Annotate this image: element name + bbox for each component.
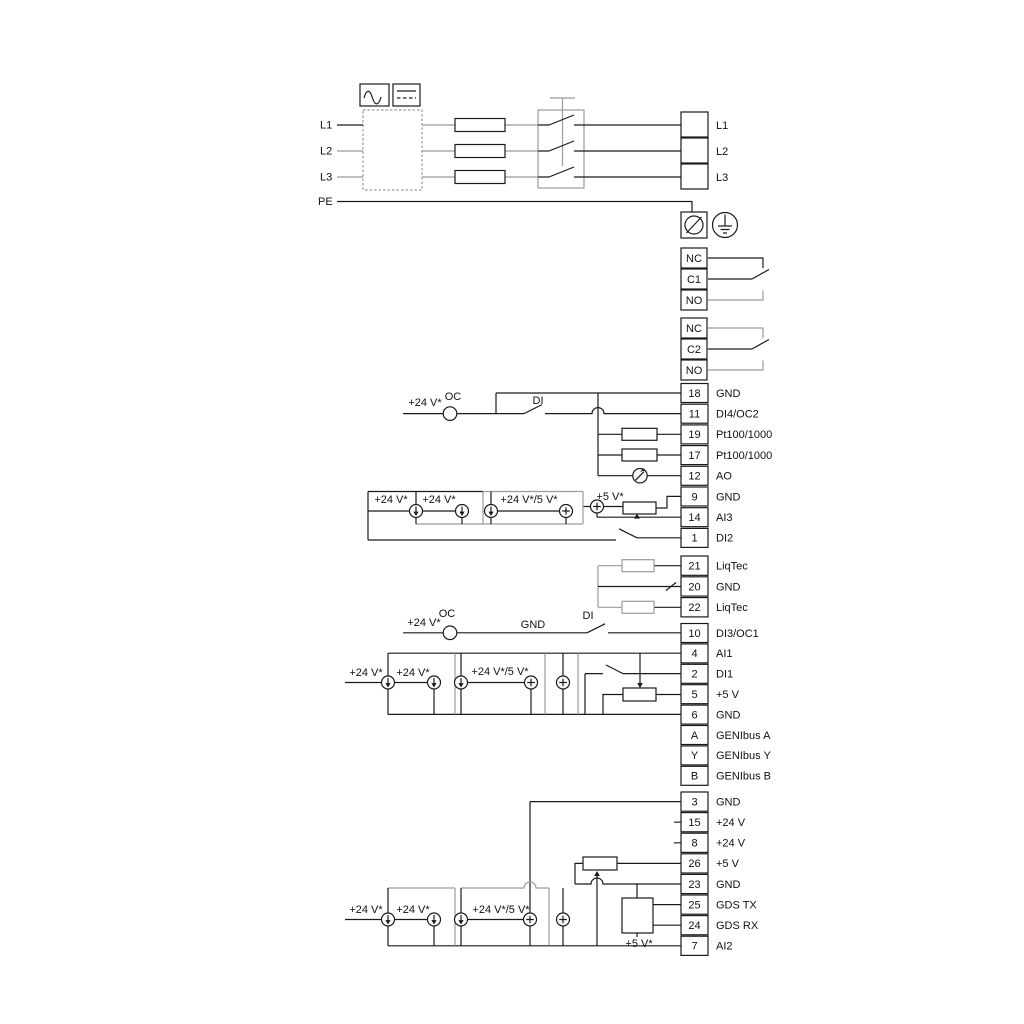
wire-23-gnd (575, 878, 681, 884)
terminal-label: +5 V (716, 689, 740, 701)
terminal-label: GENIbus Y (716, 750, 771, 762)
terminal-label: DI3/OC1 (716, 628, 759, 640)
fuse-l2 (455, 145, 505, 158)
io-mid-block: 10DI3/OC14AI12DI15+5 V6GNDAGENIbus AYGEN… (681, 624, 771, 786)
terminal-number: 6 (691, 709, 697, 721)
wire-9-gnd (656, 496, 681, 508)
relay2-contact (708, 328, 769, 370)
label-24v: +24 V* (349, 904, 383, 916)
terminal-label: Pt100/1000 (716, 429, 772, 441)
terminal-label: GND (716, 879, 741, 891)
terminal-number: 12 (688, 471, 700, 483)
wire-pe (337, 202, 692, 213)
text-labels: L1 L2 L3 PE L1 L2 L3 +24 V* OC DI +24 V*… (318, 120, 728, 951)
terminal-number: B (691, 771, 698, 783)
label-di: DI (583, 610, 594, 622)
terminal-label: +24 V (716, 838, 746, 850)
fuse-l1 (455, 119, 505, 132)
label-5v: +5 V* (596, 491, 624, 503)
liqtec-sensor-1 (622, 560, 654, 572)
terminal-number: 21 (688, 560, 700, 572)
terminal-number: 22 (688, 602, 700, 614)
terminal-number: 7 (691, 941, 697, 953)
terminal-label: AI1 (716, 648, 733, 660)
terminal-number: Y (691, 750, 699, 762)
label-l2-out: L2 (716, 146, 728, 158)
terminal-label: GDS TX (716, 899, 757, 911)
terminal-number: NO (686, 295, 703, 307)
io-top-block: 18GND11DI4/OC219Pt100/100017Pt100/100012… (681, 384, 772, 548)
terminal-number: 20 (688, 581, 700, 593)
terminal-label: AO (716, 471, 732, 483)
terminal-number: 3 (691, 796, 697, 808)
disconnect-switch-box (538, 110, 584, 188)
relay1-contact (708, 258, 769, 300)
terminal-number: 14 (688, 512, 700, 524)
label-oc: OC (439, 608, 456, 620)
liqtec-wiring (598, 560, 681, 614)
terminal-label: Pt100/1000 (716, 450, 772, 462)
di2-switch-blade (619, 529, 637, 538)
terminal-number: C2 (687, 344, 701, 356)
terminal-number: 26 (688, 858, 700, 870)
pt100-resistor-2 (622, 449, 657, 461)
label-24v: +24 V* (422, 494, 456, 506)
rail-hop (461, 882, 549, 888)
terminal-number: 11 (689, 409, 700, 421)
terminal-label: GND (716, 491, 741, 503)
terminal-number: 10 (688, 628, 700, 640)
relay1-blade (752, 270, 769, 280)
terminal-number: 24 (688, 920, 700, 932)
label-gnd: GND (521, 619, 546, 631)
ai2-potentiometer (583, 857, 617, 870)
terminal-number: 23 (688, 879, 700, 891)
filter-dashed-box (363, 110, 422, 190)
stub-24v (674, 822, 681, 843)
ai1-potentiometer (623, 688, 656, 701)
terminal-label: GND (716, 796, 741, 808)
label-24v-5v: +24 V*/5 V* (472, 904, 530, 916)
terminal-number: 5 (691, 689, 697, 701)
wiring-diagram-page: NCC1NONCC2NO18GND11DI4/OC219Pt100/100017… (0, 0, 1024, 1024)
label-l1-out: L1 (716, 120, 728, 132)
oc-output-icon (443, 626, 457, 640)
terminal-number: 2 (691, 669, 697, 681)
relay2-block: NCC2NO (681, 318, 707, 380)
io-bottom-block: 3GND15+24 V8+24 V26+5 V23GND25GDS TX24GD… (681, 792, 759, 955)
fuse-l3 (455, 171, 505, 184)
label-24v: +24 V* (408, 397, 442, 409)
terminal-label: DI1 (716, 669, 733, 681)
terminal-label: GND (716, 581, 741, 593)
wire-11-di4 (545, 408, 681, 414)
di1-switch-blade (606, 665, 623, 674)
terminal-number: NO (686, 365, 703, 377)
terminal-label: GND (716, 388, 741, 400)
gds-sensor-box (622, 898, 653, 933)
label-24v-5v: +24 V*/5 V* (500, 494, 558, 506)
relay2-blade (752, 340, 769, 350)
liqtec-sensor-2 (622, 601, 654, 613)
label-24v: +24 V* (407, 617, 441, 629)
io-bottom-wiring (345, 802, 681, 946)
terminal-label: +24 V (716, 817, 746, 829)
label-5v: +5 V* (625, 938, 653, 950)
label-24v-5v: +24 V*/5 V* (471, 666, 529, 678)
terminal-number: 1 (691, 533, 697, 545)
label-l3-out: L3 (716, 172, 728, 184)
label-24v: +24 V* (349, 667, 383, 679)
terminal-label: AI3 (716, 512, 733, 524)
terminal-label: DI4/OC2 (716, 409, 759, 421)
label-oc: OC (445, 391, 462, 403)
terminal-number: 8 (691, 838, 697, 850)
terminal-label: LiqTec (716, 560, 748, 572)
pot-left-return (575, 863, 583, 884)
terminal-cell (681, 112, 708, 137)
liqtec-block: 21LiqTec20GND22LiqTec (681, 556, 748, 617)
terminal-label: GND (716, 709, 741, 721)
ai3-potentiometer (623, 502, 656, 514)
terminal-number: 19 (688, 429, 700, 441)
pot-left-return (603, 695, 623, 715)
terminal-label: +5 V (716, 858, 740, 870)
label-24v: +24 V* (396, 667, 430, 679)
label-24v: +24 V* (396, 904, 430, 916)
label-l3-in: L3 (320, 172, 332, 184)
oc-output-icon (443, 407, 457, 421)
terminal-label: GENIbus A (716, 730, 771, 742)
terminal-number: NC (686, 253, 702, 265)
terminal-number: C1 (687, 274, 701, 286)
terminal-label: GDS RX (716, 920, 759, 932)
terminal-cell (681, 164, 708, 189)
label-24v: +24 V* (374, 494, 408, 506)
wiring-diagram: NCC1NONCC2NO18GND11DI4/OC219Pt100/100017… (0, 0, 1024, 1024)
terminal-number: 18 (688, 388, 700, 400)
terminal-number: 15 (688, 817, 700, 829)
dc-symbol-box (393, 84, 420, 106)
ai1-pot-wiper-arrow (637, 683, 643, 688)
terminal-label: LiqTec (716, 602, 748, 614)
terminal-cell (681, 138, 708, 163)
terminal-number: 17 (688, 450, 700, 462)
terminal-number: A (691, 730, 699, 742)
terminal-number: 25 (688, 899, 700, 911)
power-input-section (337, 84, 738, 238)
terminal-label: DI2 (716, 533, 733, 545)
terminal-label: GENIbus B (716, 771, 771, 783)
terminal-number: 9 (691, 491, 697, 503)
terminal-label: AI2 (716, 941, 733, 953)
di3-switch-blade (587, 624, 605, 633)
terminal-number: NC (686, 323, 702, 335)
io-top-wiring (368, 393, 681, 540)
label-pe: PE (318, 196, 333, 208)
terminal-number: 4 (691, 648, 697, 660)
pt100-resistor-1 (622, 428, 657, 440)
mains-output-block (681, 112, 708, 189)
label-l2-in: L2 (320, 146, 332, 158)
relay1-block: NCC1NO (681, 248, 707, 310)
label-di: DI (533, 395, 544, 407)
label-l1-in: L1 (320, 120, 332, 132)
